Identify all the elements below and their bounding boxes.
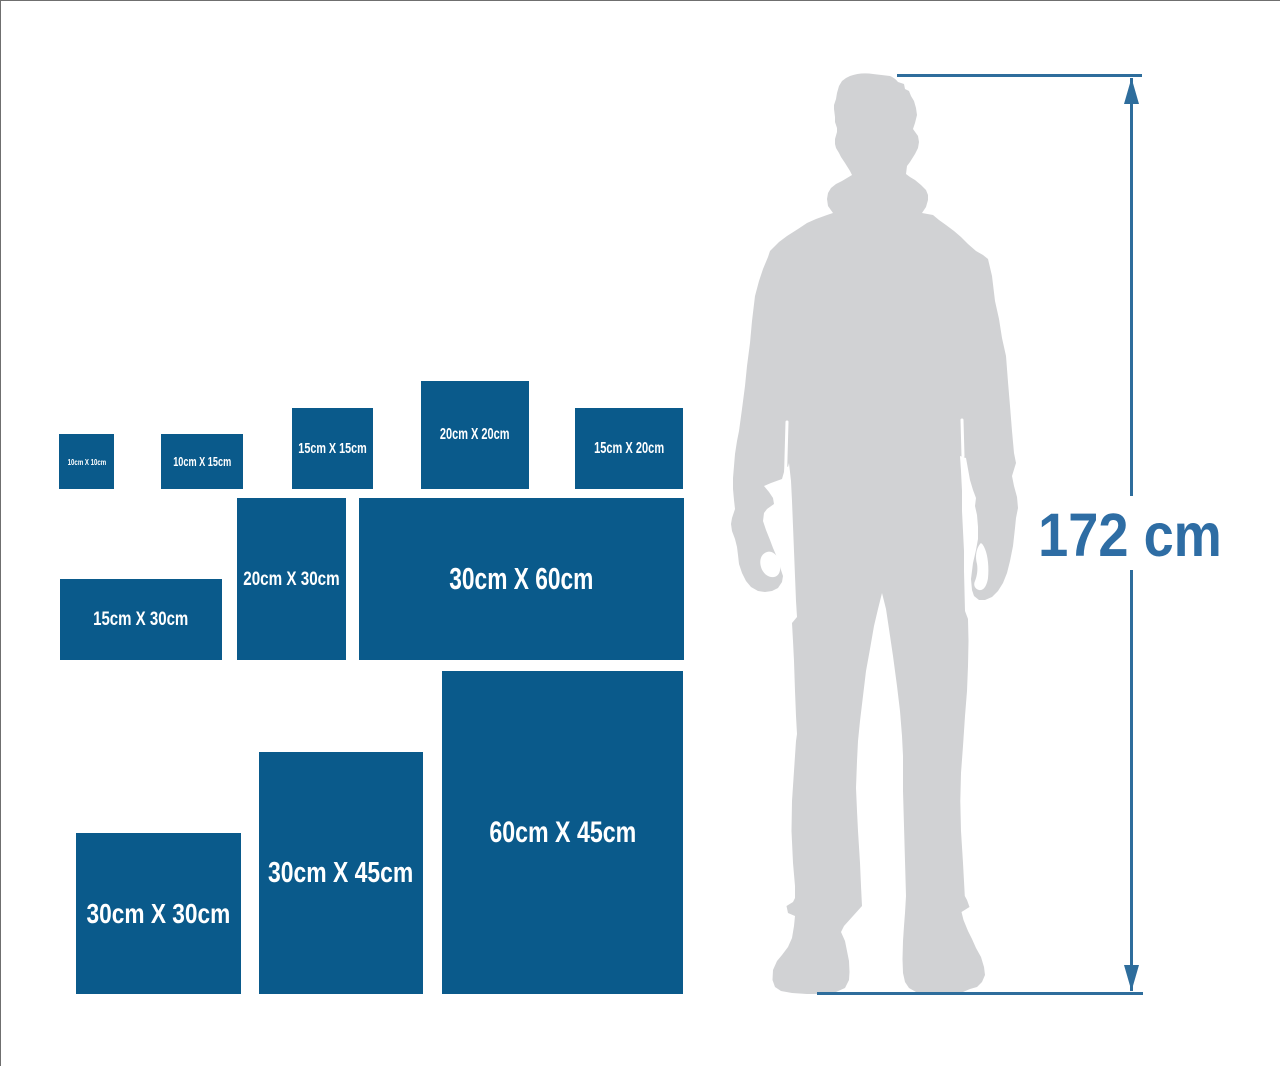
svg-text:172 cm: 172 cm bbox=[1038, 502, 1222, 570]
